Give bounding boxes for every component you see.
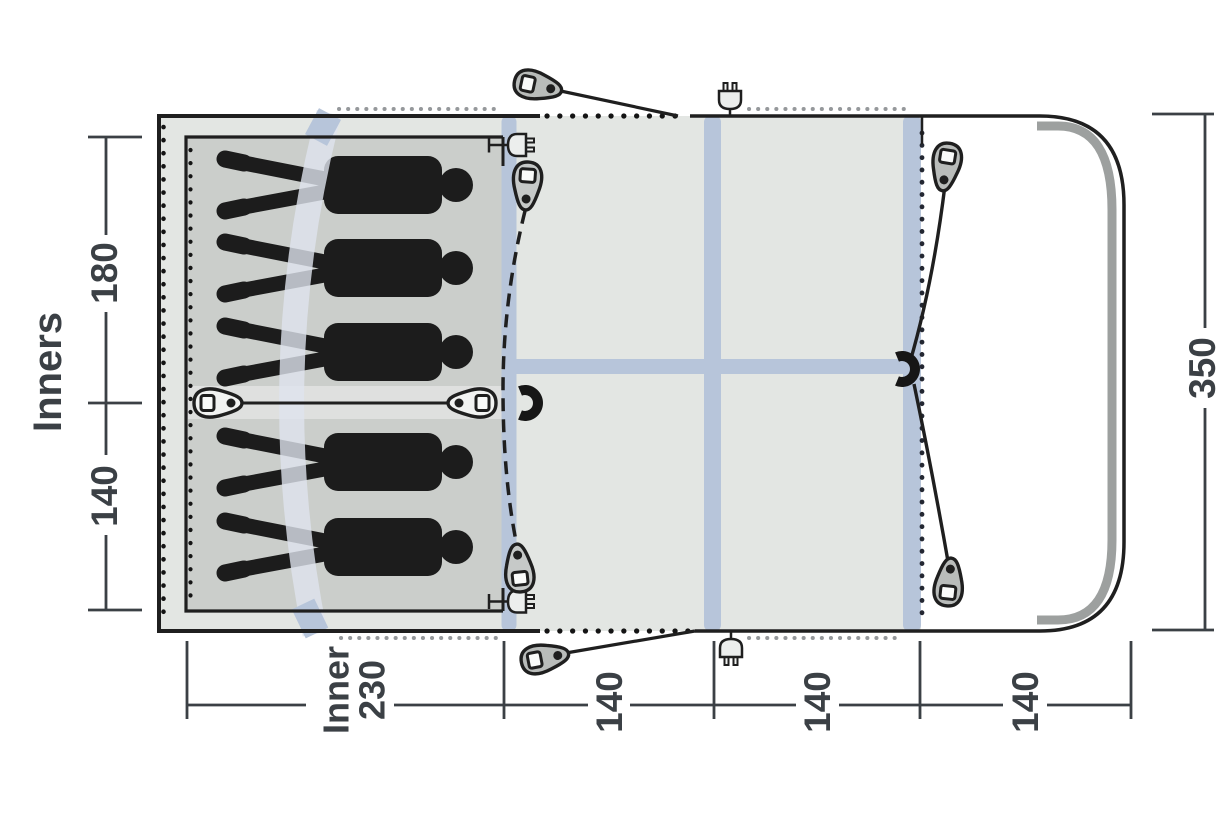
dim-label-140-a: 140 (589, 671, 630, 733)
dim-label-140-c: 140 (1005, 671, 1046, 733)
dim-label-230: 230 (352, 660, 393, 720)
tent-floorplan-page: Inners 180 140 350 Inner 230 140 140 140 (0, 0, 1230, 816)
guyline-peg-icon (519, 640, 571, 677)
guyline-top (556, 90, 678, 116)
air-beam-horizontal (503, 359, 921, 374)
guyline-peg-icon (512, 67, 565, 105)
dim-label-180: 180 (84, 242, 125, 304)
power-plug-icon (720, 639, 742, 665)
dim-label-inner-230: Inner 230 (316, 646, 393, 734)
dim-label-140-b: 140 (797, 671, 838, 733)
dim-label-140-left: 140 (84, 465, 125, 527)
guyline-bottom (560, 631, 695, 654)
dim-label-350: 350 (1182, 337, 1223, 399)
power-plug-icon (719, 83, 741, 109)
tent-floorplan-diagram: Inners 180 140 350 Inner 230 140 140 140 (0, 0, 1230, 816)
dim-label-inner: Inner (316, 646, 357, 734)
air-beam-stub-bottom (303, 604, 317, 633)
side-label-inners: Inners (26, 312, 70, 432)
